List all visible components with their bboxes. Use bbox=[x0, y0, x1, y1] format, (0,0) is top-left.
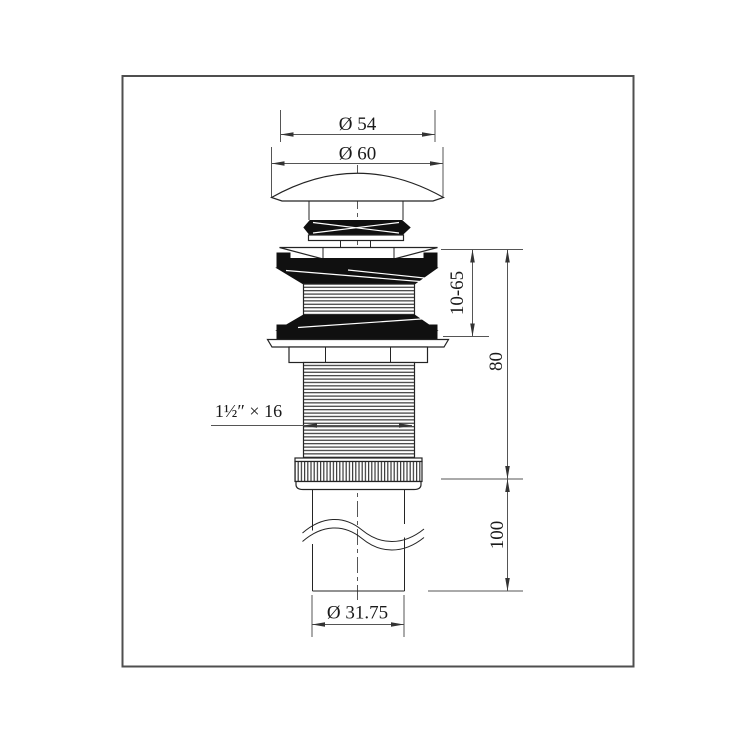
dia60-arrow-left bbox=[272, 161, 285, 166]
dia54-label: Ø 54 bbox=[339, 114, 377, 135]
connector-stems bbox=[341, 241, 371, 248]
main-thread-body bbox=[304, 363, 415, 459]
body-length-arrow-bottom bbox=[505, 466, 510, 479]
tail-length-arrow-top bbox=[505, 479, 510, 492]
dia60-label: Ø 60 bbox=[339, 144, 376, 165]
dia3175-label: Ø 31.75 bbox=[327, 603, 388, 624]
tail-pipe bbox=[313, 490, 405, 591]
knurl-band bbox=[295, 462, 422, 482]
thread-spec-label: 1½″ × 16 bbox=[215, 401, 282, 421]
deck-flange-plate bbox=[268, 340, 449, 348]
upper-thread-section bbox=[304, 284, 415, 315]
dia54-arrow-right bbox=[422, 132, 435, 137]
knurl-base-cap bbox=[296, 482, 421, 490]
body-length-arrow-top bbox=[505, 250, 510, 263]
dia3175-arrow-right bbox=[391, 622, 404, 627]
tail-length-arrow-bottom bbox=[505, 578, 510, 591]
drawing-canvas: Ø 54 Ø 60 10-65 80 100 1½″ × 16 Ø 31.75 bbox=[0, 0, 750, 750]
gasket-bottom-bar bbox=[277, 331, 437, 340]
cap-stem bbox=[309, 201, 403, 220]
clamp-range-arrow-bottom bbox=[470, 324, 475, 337]
dia60-arrow-right bbox=[430, 161, 443, 166]
dia54-arrow-left bbox=[281, 132, 294, 137]
clamp-range-label: 10-65 bbox=[447, 271, 468, 315]
gasket-top-bar bbox=[277, 259, 437, 269]
body-length-label: 80 bbox=[486, 352, 507, 371]
clamp-range-arrow-top bbox=[470, 250, 475, 263]
hex-nut bbox=[289, 347, 428, 363]
cap-dome bbox=[272, 173, 444, 201]
cap-washer-plate bbox=[309, 235, 404, 241]
drain-assembly bbox=[268, 173, 449, 591]
tail-length-label: 100 bbox=[487, 521, 508, 550]
dia3175-arrow-left bbox=[312, 622, 325, 627]
technical-drawing-svg: Ø 54 Ø 60 10-65 80 100 1½″ × 16 Ø 31.75 bbox=[0, 0, 750, 750]
top-flange bbox=[280, 248, 438, 260]
right-extension-lines bbox=[428, 250, 523, 592]
gasket-lower-taper bbox=[277, 315, 437, 331]
